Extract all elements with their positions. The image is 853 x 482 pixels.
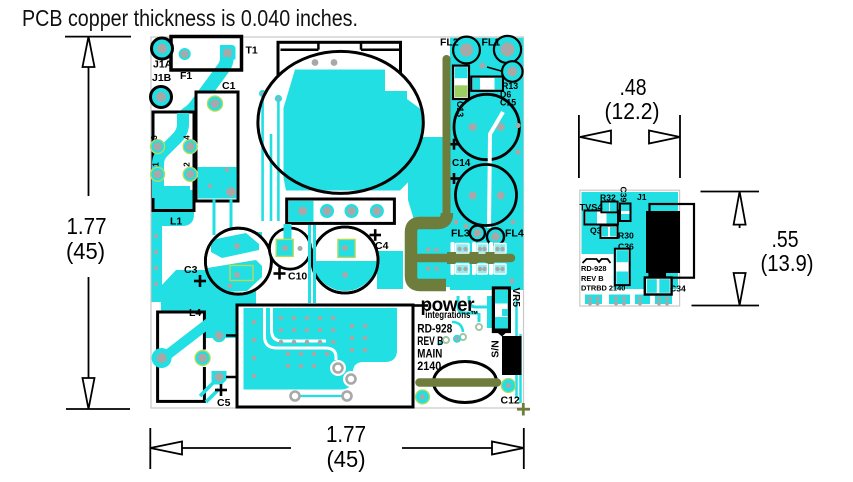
- svg-text:C13: C13: [455, 101, 465, 117]
- svg-text:(45): (45): [66, 238, 105, 264]
- svg-text:L1: L1: [170, 216, 182, 228]
- svg-text:C12: C12: [501, 395, 520, 407]
- svg-text:C14: C14: [452, 158, 471, 169]
- svg-text:C36: C36: [618, 242, 634, 252]
- svg-text:4: 4: [183, 135, 192, 140]
- svg-text:J1A: J1A: [153, 59, 173, 71]
- svg-text:J1B: J1B: [152, 72, 172, 84]
- svg-text:FL1: FL1: [482, 37, 501, 49]
- svg-text:C4: C4: [375, 240, 389, 252]
- svg-text:TVS4: TVS4: [580, 203, 604, 213]
- svg-text:VR5: VR5: [510, 288, 521, 308]
- svg-text:1.77: 1.77: [326, 421, 366, 447]
- svg-text:FL3: FL3: [451, 228, 470, 240]
- svg-text:2: 2: [183, 162, 192, 167]
- svg-text:RD-928: RD-928: [581, 264, 606, 273]
- svg-text:J1: J1: [637, 192, 647, 202]
- svg-text:(12.2): (12.2): [605, 98, 660, 124]
- svg-text:F1: F1: [180, 70, 192, 82]
- svg-text:C39: C39: [619, 187, 629, 203]
- svg-text:C5: C5: [217, 397, 231, 409]
- svg-text:(45): (45): [327, 446, 366, 472]
- svg-text:C15: C15: [500, 98, 516, 108]
- svg-text:R32: R32: [600, 193, 616, 203]
- svg-text:DTRBD 2140: DTRBD 2140: [581, 284, 625, 293]
- svg-text:integrations™: integrations™: [425, 310, 478, 321]
- svg-text:FL4: FL4: [505, 228, 524, 240]
- svg-text:C34: C34: [670, 284, 686, 294]
- svg-text:R30: R30: [618, 231, 634, 241]
- svg-text:FL2: FL2: [440, 37, 459, 49]
- svg-text:2140: 2140: [417, 359, 441, 373]
- svg-text:Q3: Q3: [590, 226, 602, 236]
- svg-text:3: 3: [150, 135, 159, 140]
- svg-text:.48: .48: [620, 74, 647, 100]
- svg-text:C3: C3: [184, 264, 198, 276]
- svg-text:C1: C1: [222, 80, 236, 92]
- svg-text:T1: T1: [246, 45, 258, 57]
- svg-text:REV B: REV B: [581, 274, 604, 283]
- svg-text:S/N: S/N: [489, 340, 501, 358]
- svg-text:C10: C10: [288, 271, 307, 283]
- svg-text:1: 1: [152, 162, 161, 167]
- svg-text:.55: .55: [772, 226, 799, 252]
- svg-text:PCB copper thickness is 0.040: PCB copper thickness is 0.040 inches.: [22, 5, 358, 31]
- svg-text:L4: L4: [189, 307, 201, 319]
- svg-text:1.77: 1.77: [67, 213, 107, 239]
- svg-text:(13.9): (13.9): [761, 250, 814, 276]
